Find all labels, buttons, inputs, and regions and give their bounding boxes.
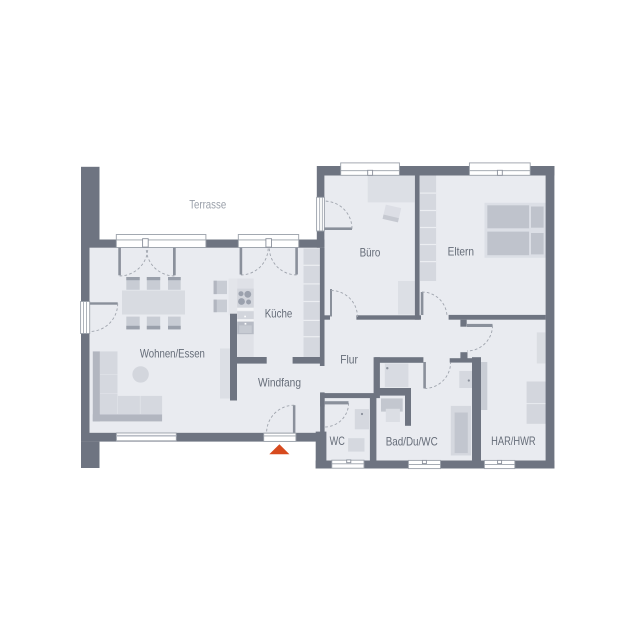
svg-text:Bad/Du/WC: Bad/Du/WC bbox=[386, 435, 438, 449]
svg-text:Büro: Büro bbox=[360, 246, 381, 260]
svg-text:Terrasse: Terrasse bbox=[189, 198, 226, 212]
svg-text:Eltern: Eltern bbox=[448, 245, 474, 259]
svg-text:Küche: Küche bbox=[265, 306, 293, 320]
svg-text:HAR/HWR: HAR/HWR bbox=[491, 434, 536, 448]
svg-text:Windfang: Windfang bbox=[258, 375, 301, 389]
svg-text:WC: WC bbox=[330, 434, 345, 448]
svg-text:Wohnen/Essen: Wohnen/Essen bbox=[140, 347, 205, 361]
svg-text:Flur: Flur bbox=[340, 352, 358, 366]
